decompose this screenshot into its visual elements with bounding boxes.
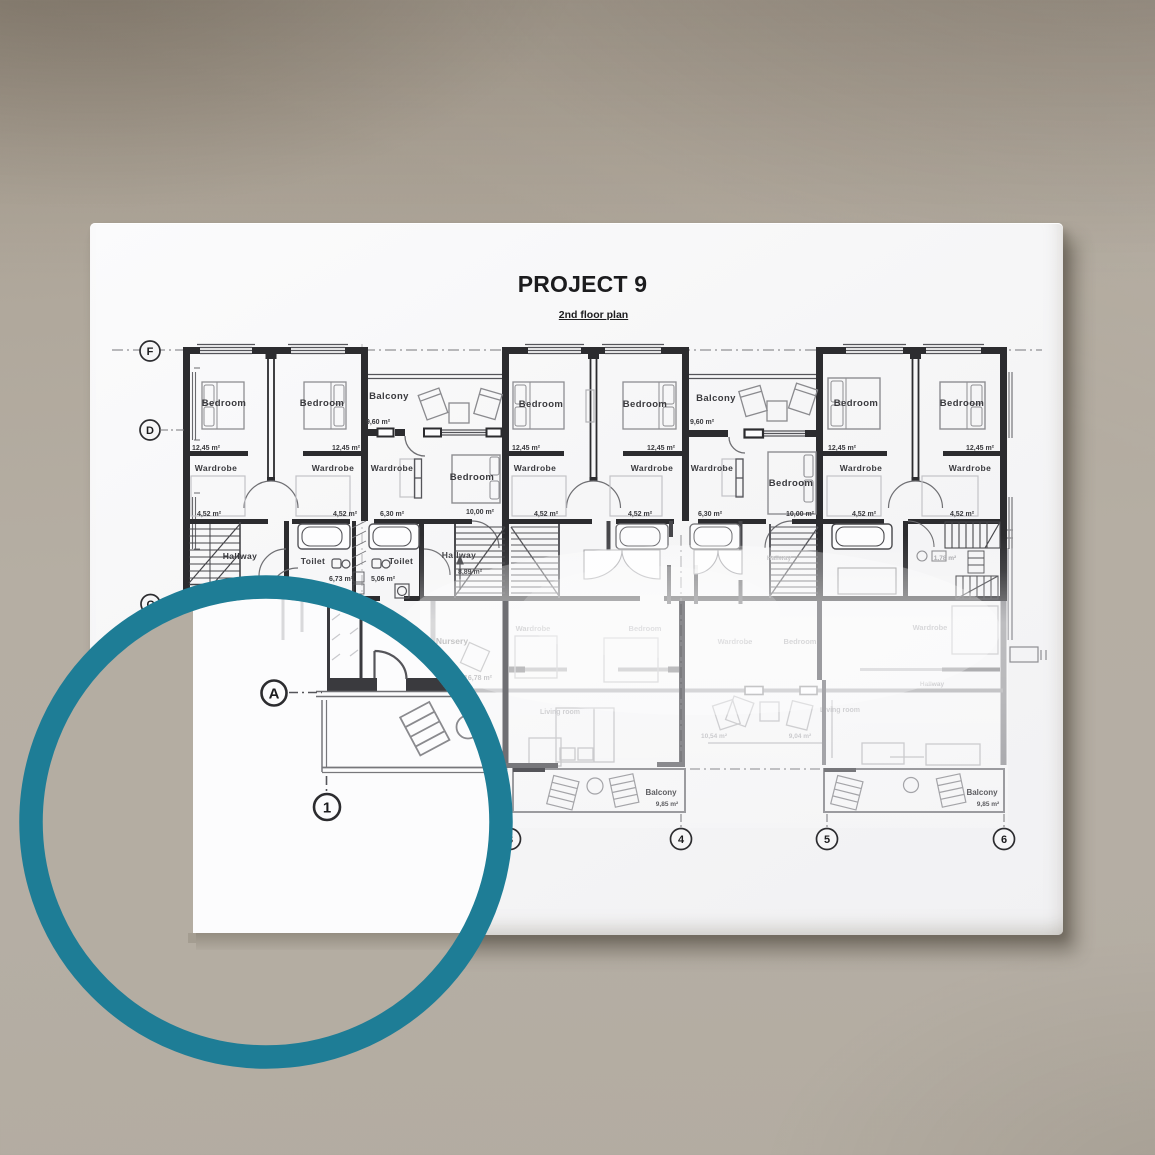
svg-text:Balcony: Balcony — [966, 788, 998, 797]
svg-text:4: 4 — [678, 834, 685, 846]
svg-text:Bedroom: Bedroom — [202, 398, 247, 409]
svg-text:Bedroom: Bedroom — [834, 398, 879, 409]
svg-text:12,45 m²: 12,45 m² — [828, 445, 857, 452]
svg-text:D: D — [146, 425, 154, 437]
svg-text:Hallway: Hallway — [223, 551, 257, 561]
svg-text:Bedroom: Bedroom — [300, 398, 345, 409]
svg-text:Bedroom: Bedroom — [519, 399, 564, 410]
svg-text:Bedroom: Bedroom — [940, 398, 985, 409]
svg-text:4,52 m²: 4,52 m² — [197, 511, 222, 518]
svg-text:Wardrobe: Wardrobe — [195, 463, 238, 473]
svg-text:Balcony: Balcony — [696, 393, 736, 404]
svg-text:9,85 m²: 9,85 m² — [977, 801, 1000, 808]
svg-text:Wardrobe: Wardrobe — [691, 463, 734, 473]
svg-text:F: F — [147, 346, 154, 358]
svg-text:12,45 m²: 12,45 m² — [966, 445, 995, 452]
svg-text:Wardrobe: Wardrobe — [631, 463, 674, 473]
svg-text:Bedroom: Bedroom — [769, 478, 814, 489]
svg-text:9,60 m²: 9,60 m² — [366, 419, 391, 426]
svg-text:1: 1 — [323, 800, 331, 817]
svg-text:12,45 m²: 12,45 m² — [192, 445, 221, 452]
svg-text:4,52 m²: 4,52 m² — [628, 511, 653, 518]
svg-text:Balcony: Balcony — [645, 788, 677, 797]
svg-text:Wardrobe: Wardrobe — [840, 463, 883, 473]
svg-text:6,30 m²: 6,30 m² — [380, 511, 405, 518]
svg-text:Bedroom: Bedroom — [450, 472, 495, 483]
svg-text:4,52 m²: 4,52 m² — [950, 511, 975, 518]
svg-text:Wardrobe: Wardrobe — [371, 463, 414, 473]
svg-text:4,52 m²: 4,52 m² — [333, 511, 358, 518]
svg-text:Balcony: Balcony — [369, 391, 409, 402]
svg-text:12,45 m²: 12,45 m² — [512, 445, 541, 452]
svg-text:Wardrobe: Wardrobe — [312, 463, 355, 473]
svg-text:4,52 m²: 4,52 m² — [534, 511, 559, 518]
svg-text:Bedroom: Bedroom — [623, 399, 668, 410]
svg-text:10,00 m²: 10,00 m² — [466, 509, 495, 516]
svg-text:5,06 m²: 5,06 m² — [371, 576, 396, 583]
svg-text:Toilet: Toilet — [389, 556, 413, 566]
svg-text:6: 6 — [1001, 834, 1007, 846]
svg-text:6,73 m²: 6,73 m² — [329, 576, 354, 583]
svg-text:Toilet: Toilet — [301, 556, 325, 566]
svg-text:6,30 m²: 6,30 m² — [698, 511, 723, 518]
svg-text:Wardrobe: Wardrobe — [949, 463, 992, 473]
svg-text:4,52 m²: 4,52 m² — [852, 511, 877, 518]
svg-text:A: A — [269, 686, 280, 703]
svg-text:12,45 m²: 12,45 m² — [647, 445, 676, 452]
svg-text:Wardrobe: Wardrobe — [514, 463, 557, 473]
svg-text:9,60 m²: 9,60 m² — [690, 419, 715, 426]
svg-text:5: 5 — [824, 834, 830, 846]
svg-text:12,45 m²: 12,45 m² — [332, 445, 361, 452]
svg-text:10,00 m²: 10,00 m² — [786, 511, 815, 518]
svg-text:9,85 m²: 9,85 m² — [656, 801, 679, 808]
